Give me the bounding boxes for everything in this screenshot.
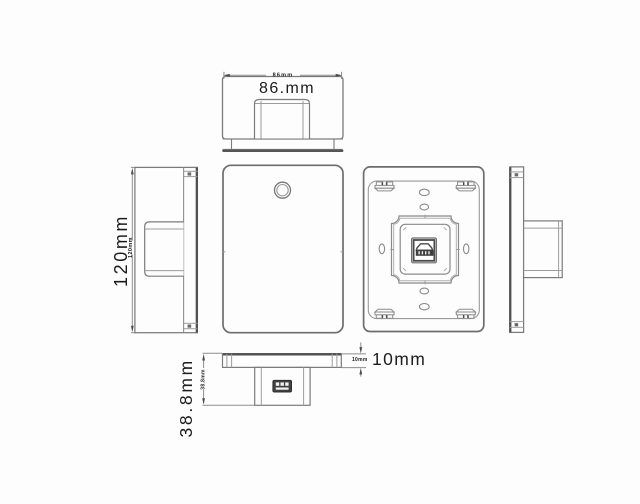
svg-text:120mm: 120mm [111,214,131,287]
svg-text:38.8mm: 38.8mm [200,369,206,390]
svg-text:10mm: 10mm [372,349,426,369]
svg-text:86mm: 86mm [273,73,294,79]
svg-text:38.8mm: 38.8mm [176,358,196,437]
svg-text:10mm: 10mm [352,357,368,363]
svg-text:86.mm: 86.mm [259,80,315,97]
